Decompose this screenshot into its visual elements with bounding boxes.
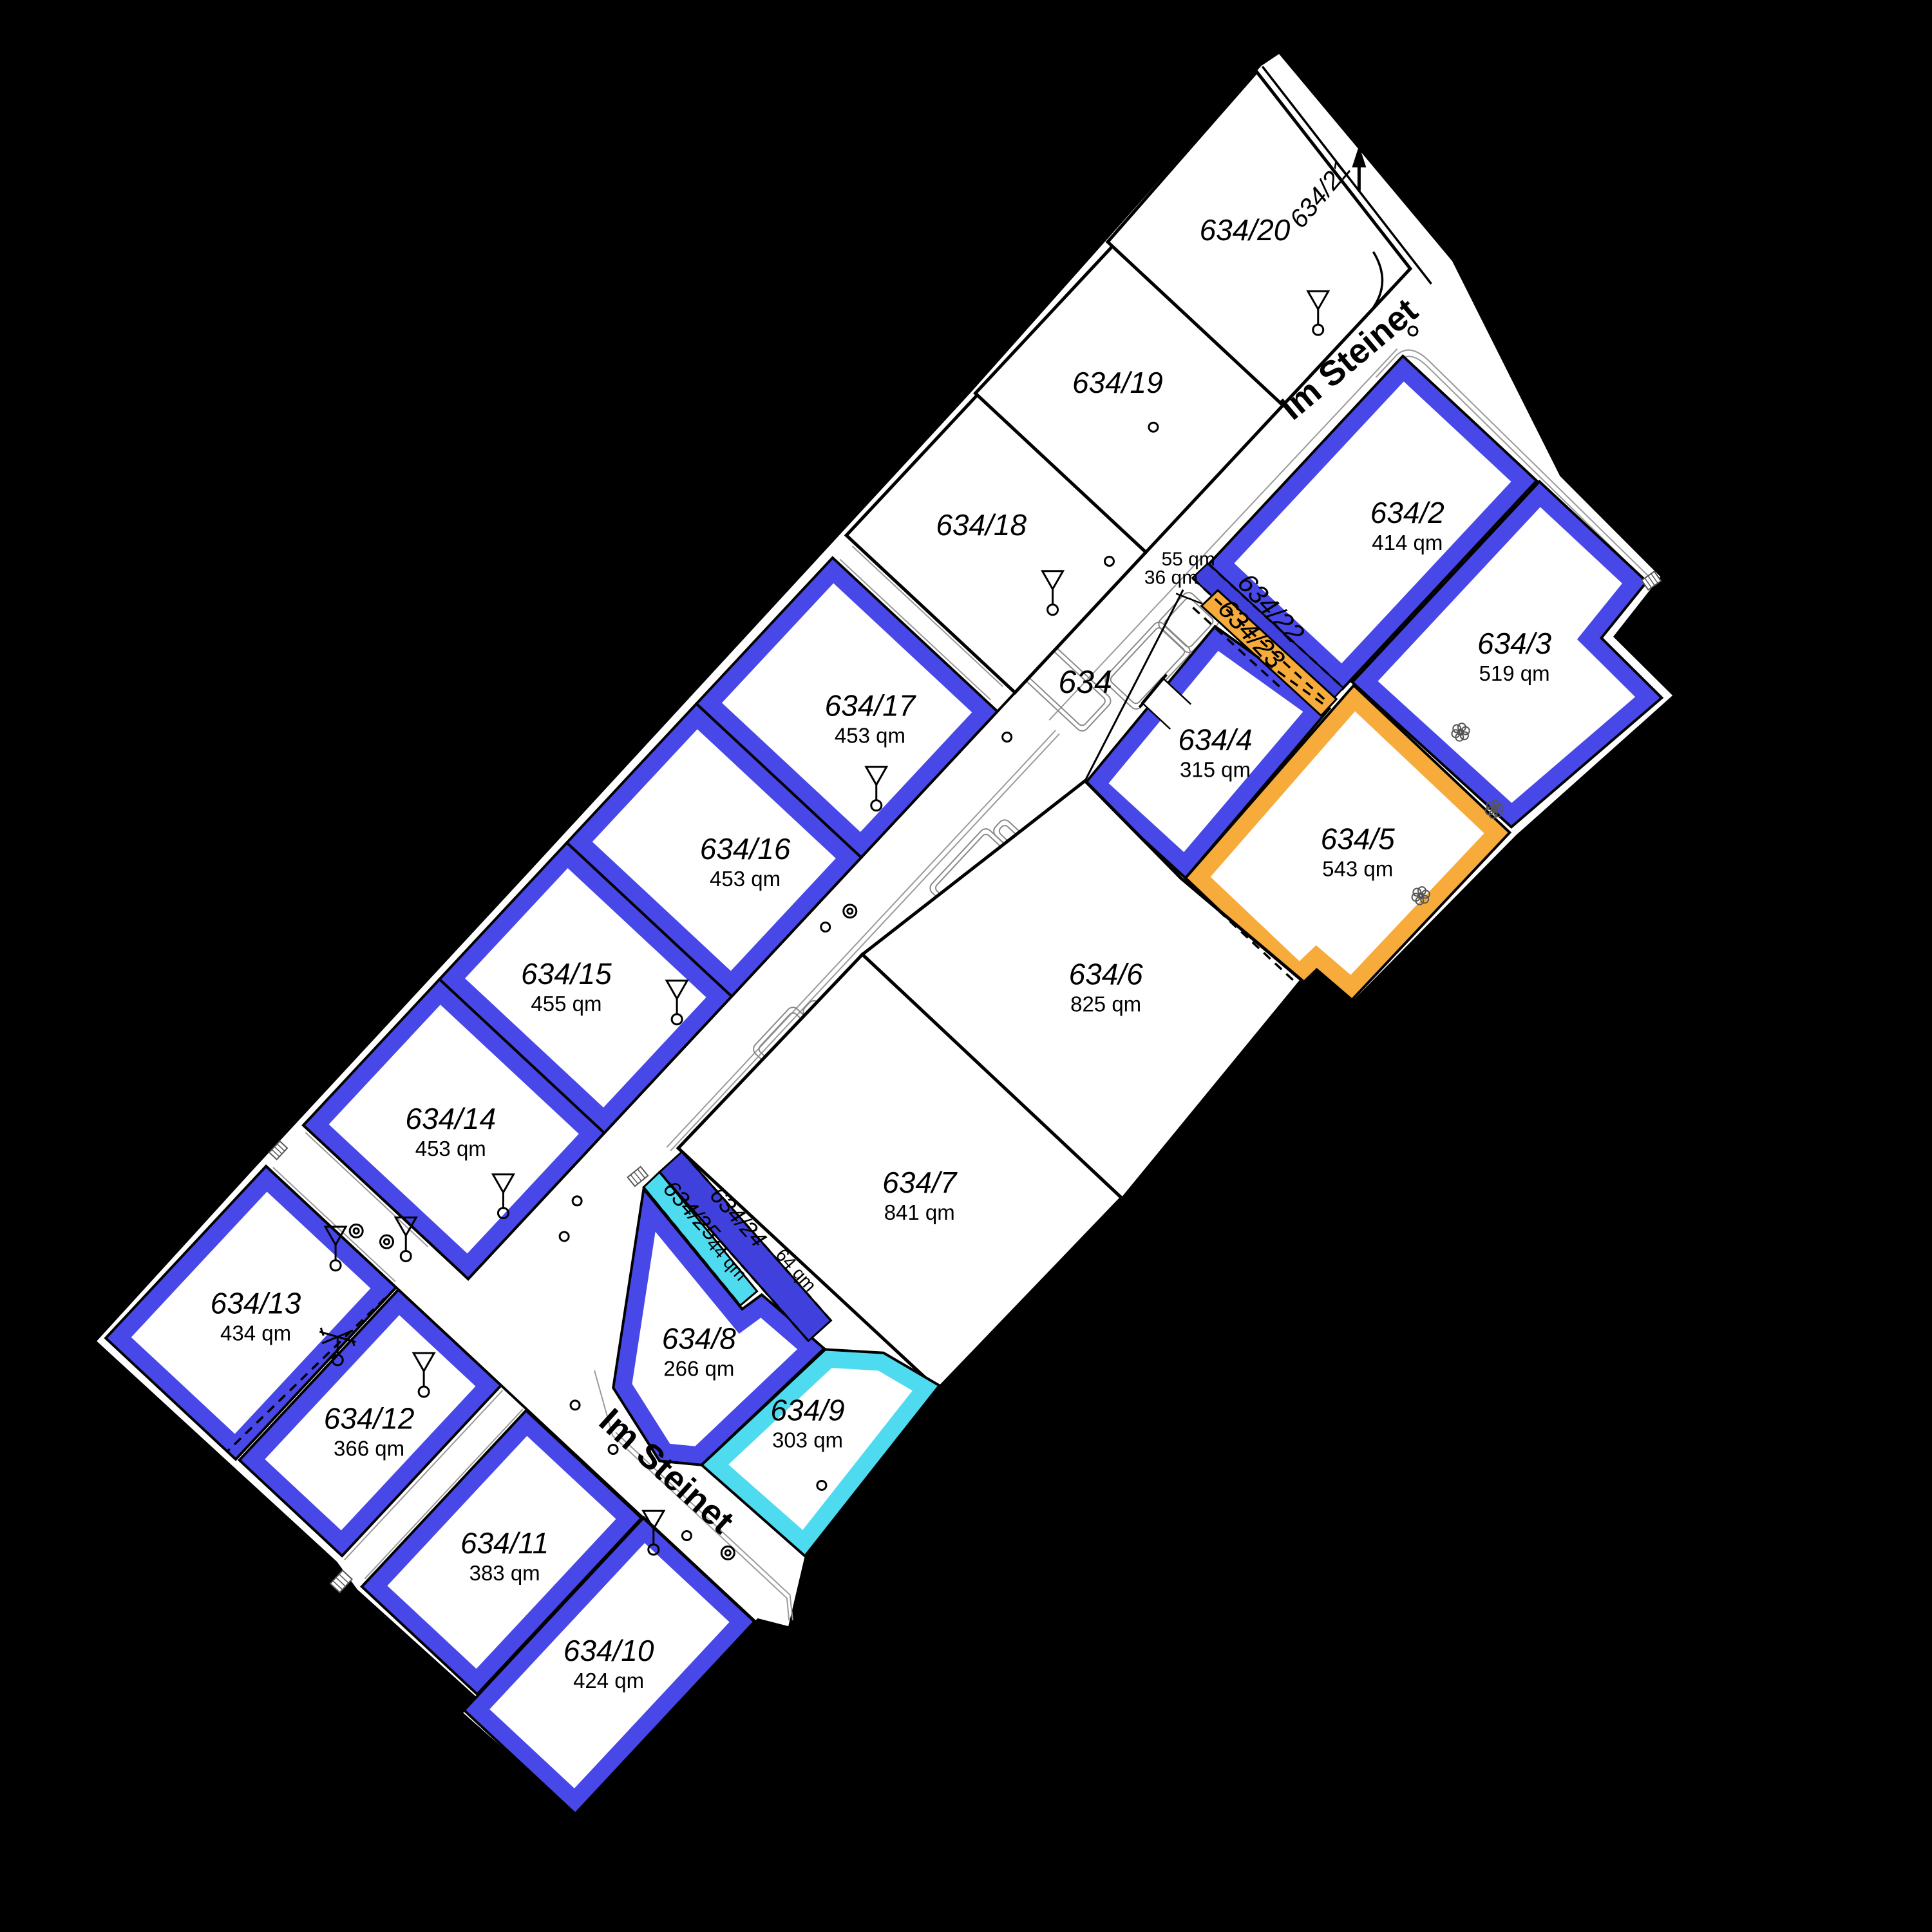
svg-text:634/2: 634/2 (1370, 496, 1444, 529)
svg-text:414 qm: 414 qm (1372, 531, 1443, 554)
svg-text:634/19: 634/19 (1072, 366, 1163, 399)
svg-text:634/10: 634/10 (563, 1634, 654, 1667)
svg-text:634/8: 634/8 (662, 1321, 737, 1355)
svg-text:455 qm: 455 qm (531, 992, 601, 1016)
svg-text:383 qm: 383 qm (469, 1561, 540, 1585)
svg-text:634/11: 634/11 (460, 1526, 549, 1560)
svg-text:453 qm: 453 qm (835, 724, 905, 748)
svg-text:634/14: 634/14 (405, 1102, 496, 1135)
svg-text:634/18: 634/18 (936, 508, 1027, 542)
svg-text:634/12: 634/12 (324, 1401, 415, 1435)
svg-text:36 qm: 36 qm (1144, 567, 1198, 588)
svg-text:634/20: 634/20 (1200, 213, 1291, 247)
svg-text:519 qm: 519 qm (1479, 661, 1550, 685)
svg-text:634/7: 634/7 (882, 1166, 958, 1199)
svg-text:634/17: 634/17 (825, 689, 916, 723)
svg-text:634/15: 634/15 (521, 957, 612, 990)
svg-text:453 qm: 453 qm (710, 867, 781, 891)
svg-text:634/6: 634/6 (1069, 957, 1144, 990)
svg-text:634/5: 634/5 (1321, 822, 1396, 856)
svg-text:634/3: 634/3 (1477, 627, 1552, 660)
svg-text:453 qm: 453 qm (415, 1137, 486, 1160)
svg-text:434 qm: 434 qm (220, 1321, 291, 1345)
svg-text:825 qm: 825 qm (1070, 992, 1141, 1016)
svg-text:303 qm: 303 qm (772, 1428, 843, 1452)
svg-text:424 qm: 424 qm (573, 1669, 644, 1692)
svg-text:315 qm: 315 qm (1180, 757, 1251, 781)
svg-text:266 qm: 266 qm (663, 1356, 734, 1380)
svg-text:634/9: 634/9 (770, 1393, 844, 1426)
svg-text:634/13: 634/13 (211, 1286, 301, 1320)
svg-text:634/16: 634/16 (700, 832, 791, 866)
svg-text:841 qm: 841 qm (884, 1200, 955, 1224)
svg-text:543 qm: 543 qm (1322, 857, 1393, 881)
svg-text:634: 634 (1058, 664, 1112, 700)
svg-text:366 qm: 366 qm (334, 1436, 404, 1460)
svg-text:634/4: 634/4 (1178, 723, 1252, 756)
